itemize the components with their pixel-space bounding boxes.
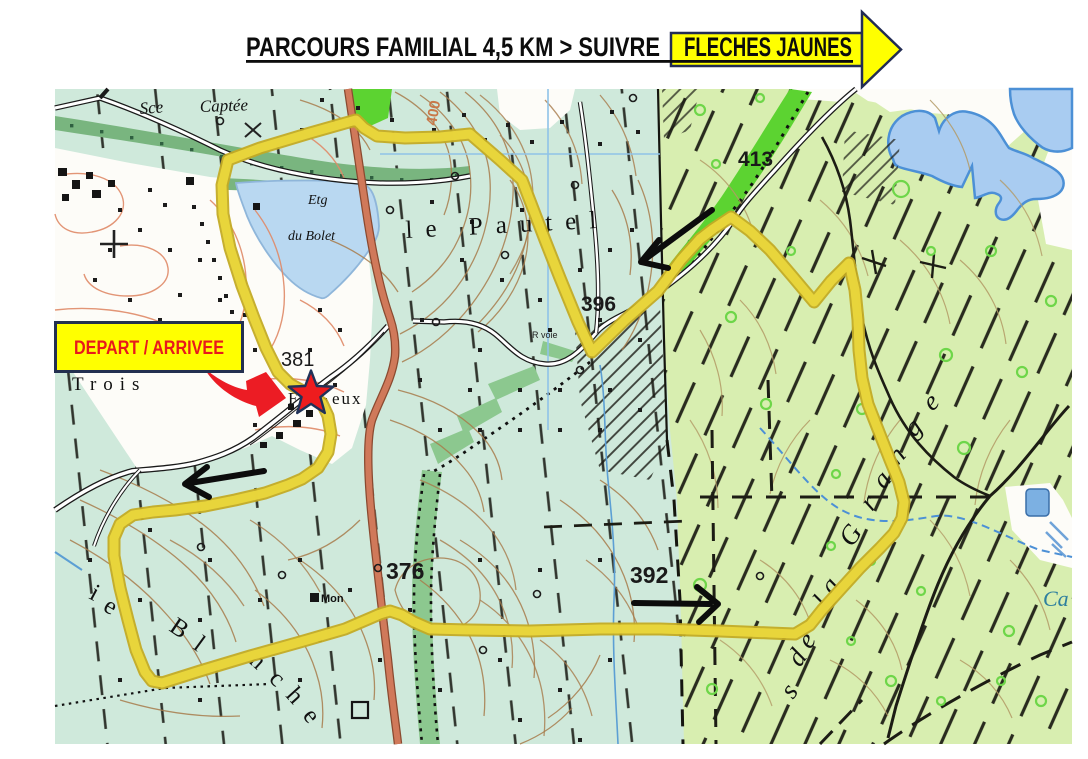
svg-text:Mon: Mon: [321, 593, 344, 605]
svg-text:392: 392: [630, 562, 668, 588]
svg-text:FLECHES JAUNES: FLECHES JAUNES: [684, 32, 852, 62]
svg-text:eux: eux: [332, 389, 363, 408]
svg-text:413: 413: [738, 148, 773, 171]
svg-text:376: 376: [386, 558, 424, 584]
svg-text:Captée: Captée: [199, 95, 248, 116]
svg-text:Trois: Trois: [72, 374, 146, 395]
svg-text:R voie: R voie: [532, 330, 558, 340]
svg-text:381: 381: [281, 349, 314, 371]
svg-text:Ca: Ca: [1043, 586, 1069, 611]
svg-text:Sce: Sce: [139, 97, 164, 118]
svg-text:PARCOURS FAMILIAL 4,5 KM > SU: PARCOURS FAMILIAL 4,5 KM > SUIVRE: [246, 32, 660, 62]
svg-text:DEPART / ARRIVEE: DEPART / ARRIVEE: [74, 337, 224, 359]
svg-text:396: 396: [581, 293, 616, 316]
svg-text:Etg: Etg: [307, 193, 327, 208]
svg-text:du Bolet: du Bolet: [288, 229, 336, 244]
